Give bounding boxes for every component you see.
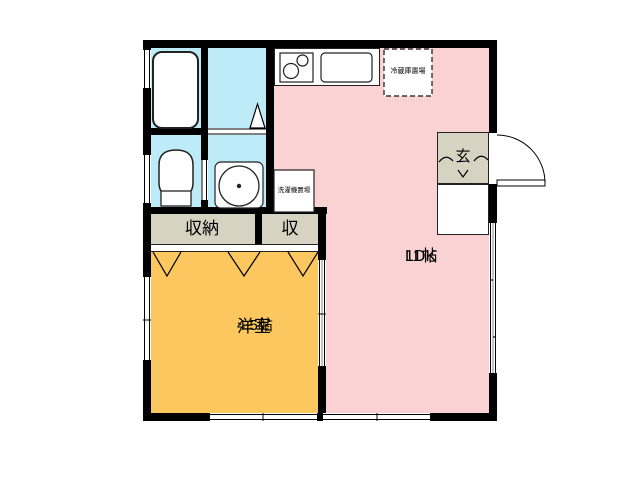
refrigerator-label: 冷蔵庫置場 xyxy=(391,68,426,76)
closet-door-track xyxy=(150,244,318,252)
entrance-door xyxy=(489,133,545,186)
closet-label: 収納 xyxy=(185,219,219,239)
floor-plan: LDK 11帖 洋室 4.5帖 収納 収 玄 冷蔵庫置場 洗濯機置場 xyxy=(0,0,640,480)
washing-machine-label: 洗濯機置場 xyxy=(278,187,311,195)
entrance-label: 玄 xyxy=(455,148,470,166)
closet-small-label: 収 xyxy=(282,219,299,239)
ldk-size: 11帖 xyxy=(405,247,438,266)
wall-bath-bottom xyxy=(143,128,208,135)
room-bath xyxy=(151,48,201,128)
room-washroom-lower xyxy=(208,134,266,207)
western-size: 4.5帖 xyxy=(237,317,273,335)
wall-wet-ldk xyxy=(266,48,274,214)
wall-left xyxy=(143,40,151,421)
room-toilet xyxy=(151,135,201,207)
kitchen-counter xyxy=(274,48,380,86)
wall-top xyxy=(143,40,497,48)
wall-storage-top xyxy=(143,207,327,214)
wall-storage-divider xyxy=(255,214,262,244)
entrance-step xyxy=(437,184,489,235)
room-western xyxy=(150,252,318,413)
wall-western-ldk xyxy=(318,214,326,421)
room-washroom-upper xyxy=(208,48,266,128)
wall-right xyxy=(489,40,497,421)
